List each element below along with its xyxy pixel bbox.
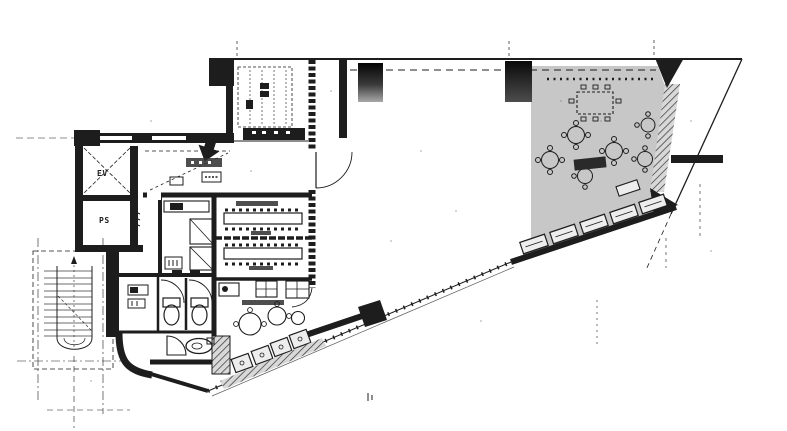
left-wall-lower bbox=[106, 245, 119, 337]
cafe-round-table bbox=[268, 307, 286, 325]
meeting-table bbox=[224, 248, 302, 259]
cafe-round-table bbox=[239, 313, 261, 335]
left-wall-upper bbox=[75, 133, 83, 252]
kitchen-right-wall bbox=[339, 58, 347, 138]
rounded-corner-wall bbox=[119, 333, 152, 375]
pipe-shaft-label: PS bbox=[99, 216, 110, 225]
terrace-wall-bar bbox=[671, 155, 723, 163]
elevator-label: EV bbox=[97, 169, 108, 178]
restroom-area bbox=[119, 270, 214, 355]
meeting-room-b bbox=[224, 245, 302, 270]
meeting-table bbox=[224, 213, 302, 224]
kitchenette-sink bbox=[219, 283, 239, 296]
kitchen-corner-column bbox=[209, 58, 234, 86]
toilet-right bbox=[191, 298, 208, 325]
main-hall-door-arc bbox=[316, 152, 352, 188]
main-hall-column-left bbox=[358, 63, 383, 102]
elevator-room: EV bbox=[80, 146, 138, 252]
entrance-fixture-b bbox=[170, 177, 183, 185]
cistern bbox=[172, 270, 182, 276]
cistern bbox=[190, 270, 200, 276]
stair-direction-arrow bbox=[71, 256, 77, 264]
bottom-tip-wall bbox=[151, 374, 208, 391]
cafe-round-table bbox=[292, 312, 305, 325]
cafe-wall-hatch-shaft bbox=[212, 336, 230, 374]
right-boundary-dash bbox=[646, 214, 671, 270]
kitchen-left-wall bbox=[226, 84, 233, 135]
area-label-smudge bbox=[242, 300, 284, 305]
stairwell bbox=[33, 251, 113, 369]
cafe-area bbox=[212, 302, 326, 389]
meeting-room-a bbox=[224, 201, 302, 235]
lounge-area bbox=[520, 66, 680, 254]
corner-basin bbox=[167, 336, 186, 355]
floor-plan-drawing: EV PS bbox=[0, 0, 787, 431]
ev-ps-divider-wall bbox=[80, 195, 138, 201]
toilet-left bbox=[163, 298, 180, 325]
floor-plan-scan: EV PS bbox=[0, 0, 787, 431]
stair-rails bbox=[57, 266, 92, 338]
main-hall-column-right bbox=[505, 61, 532, 102]
entrance-fixture-a bbox=[202, 172, 221, 182]
stair-treads bbox=[44, 271, 92, 336]
stair-turn bbox=[57, 338, 92, 349]
right-hypotenuse-wall bbox=[671, 59, 742, 214]
kitchen-area bbox=[233, 67, 308, 141]
meeting-rooms bbox=[143, 192, 312, 279]
dimension-smudge bbox=[249, 266, 273, 270]
dimension-smudge bbox=[251, 231, 271, 235]
urinal bbox=[186, 338, 214, 354]
room-label-smudge bbox=[236, 201, 278, 206]
kitchenette bbox=[219, 281, 312, 307]
kitchenette-cabinet-b bbox=[286, 281, 309, 298]
